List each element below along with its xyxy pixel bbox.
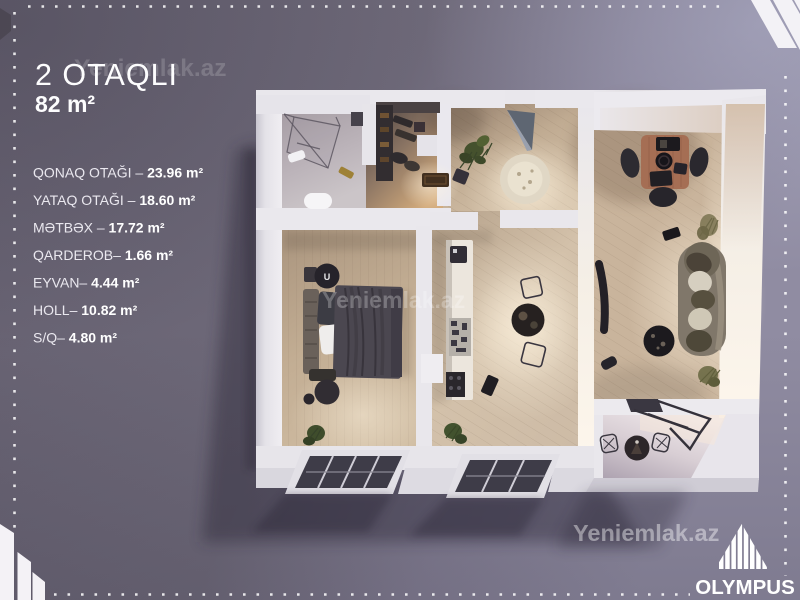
svg-text:QARDEROB– 1.66 m²: QARDEROB– 1.66 m² [33, 247, 173, 263]
svg-text:2 OTAQLI: 2 OTAQLI [35, 58, 178, 92]
svg-text:Yeniemlak.az: Yeniemlak.az [573, 520, 719, 546]
svg-text:S/Q– 4.80 m²: S/Q– 4.80 m² [33, 330, 117, 346]
svg-text:EYVAN– 4.44 m²: EYVAN– 4.44 m² [33, 275, 140, 291]
svg-text:HOLL– 10.82 m²: HOLL– 10.82 m² [33, 302, 138, 318]
svg-text:82 m²: 82 m² [35, 91, 95, 117]
svg-text:QONAQ OTAĞI – 23.96 m²: QONAQ OTAĞI – 23.96 m² [33, 165, 203, 181]
svg-text:YATAQ OTAĞI – 18.60 m²: YATAQ OTAĞI – 18.60 m² [33, 192, 196, 208]
svg-text:OLYMPUS: OLYMPUS [695, 576, 795, 599]
svg-text:MƏTBƏX – 17.72 m²: MƏTBƏX – 17.72 m² [33, 220, 165, 236]
svg-text:U: U [324, 272, 331, 282]
svg-text:Yeniemlak.az: Yeniemlak.az [322, 287, 465, 313]
